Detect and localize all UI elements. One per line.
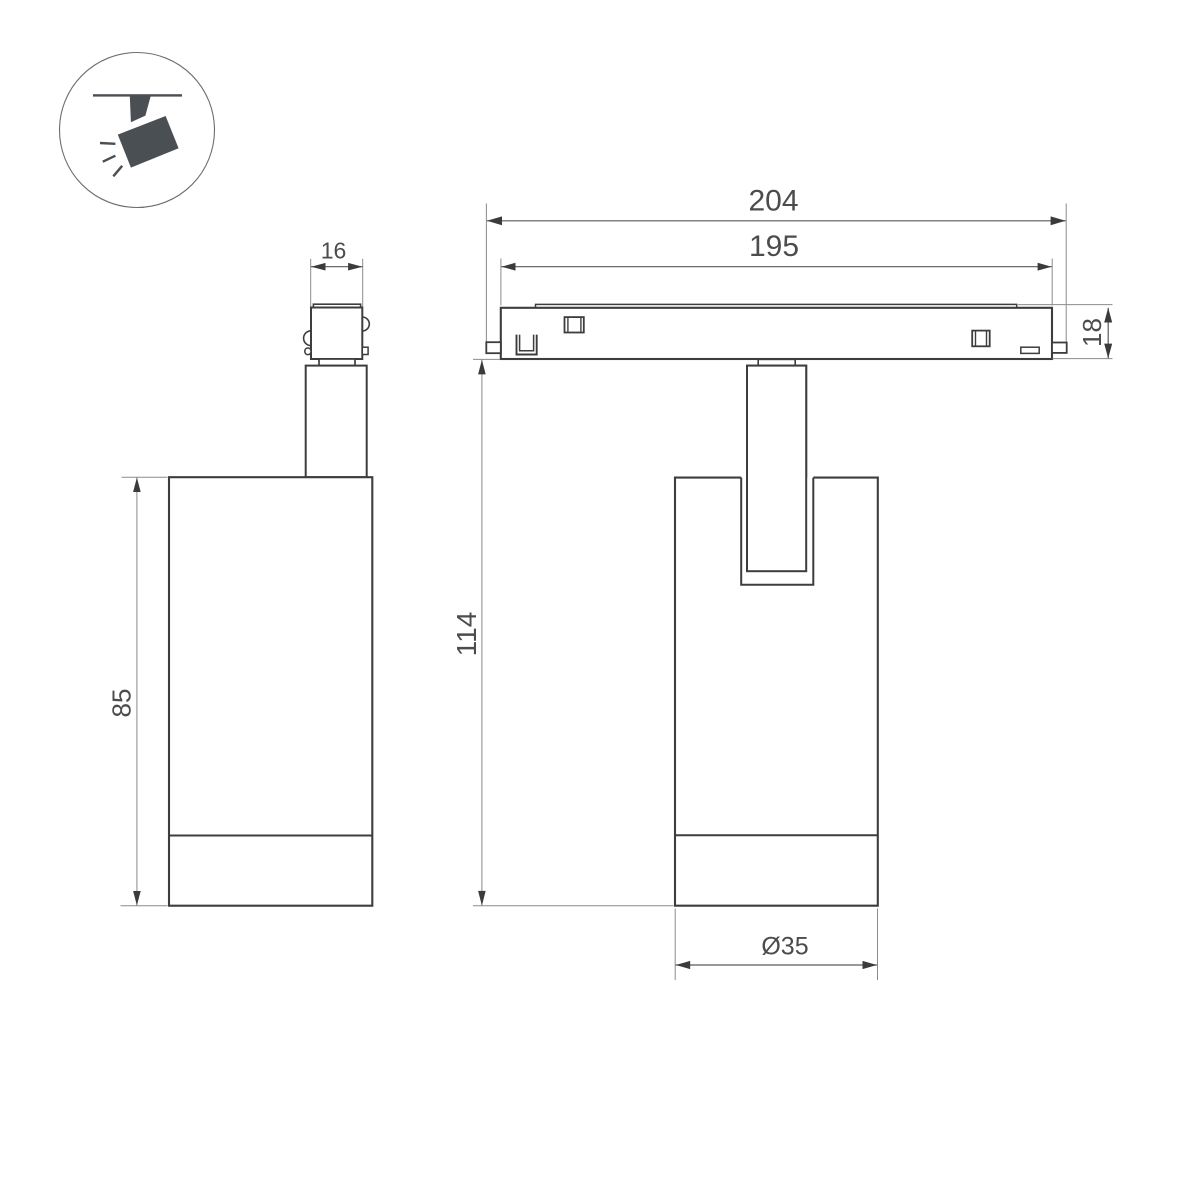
svg-text:85: 85 bbox=[107, 689, 137, 718]
svg-text:16: 16 bbox=[321, 238, 347, 264]
svg-text:114: 114 bbox=[451, 612, 482, 657]
svg-text:Ø35: Ø35 bbox=[761, 933, 808, 961]
svg-text:204: 204 bbox=[748, 185, 798, 218]
svg-text:18: 18 bbox=[1077, 318, 1107, 347]
svg-text:195: 195 bbox=[749, 230, 799, 263]
